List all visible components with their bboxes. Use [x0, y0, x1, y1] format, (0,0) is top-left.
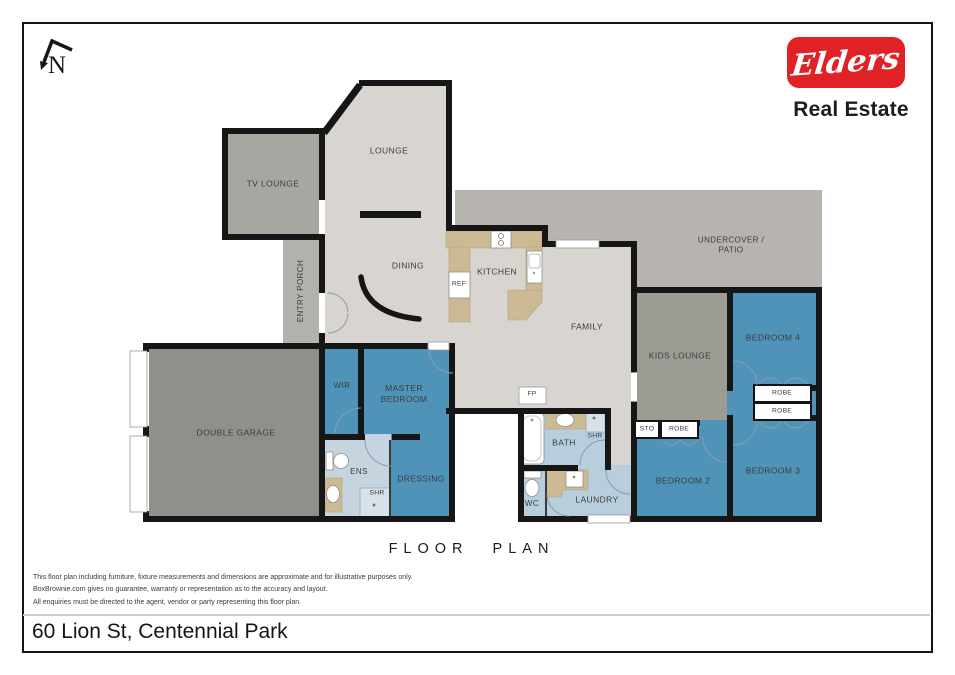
room-label-dining: DINING — [392, 260, 424, 271]
garage-door-1 — [130, 351, 147, 427]
floor-wir — [319, 343, 364, 440]
room-label-bedroom-3: BEDROOM 3 — [746, 465, 801, 476]
family-window — [556, 240, 599, 248]
disclaimer-text: This floor plan including furniture, fix… — [33, 572, 413, 609]
room-label-kids-lounge: KIDS LOUNGE — [649, 350, 712, 361]
laundry-window — [588, 515, 630, 523]
label-fp: FP — [527, 391, 536, 400]
shower-tray-bath — [586, 411, 605, 432]
laundry-sink — [566, 471, 583, 487]
label-shr-bath: SHR — [588, 433, 603, 442]
label-sto: STO — [640, 426, 654, 435]
disclaimer-line-1: This floor plan including furniture, fix… — [33, 572, 413, 584]
room-label-tv-lounge: TV LOUNGE — [247, 178, 300, 189]
hall-opening — [631, 373, 637, 401]
room-label-laundry: LAUNDRY — [575, 494, 618, 505]
ens-basin — [327, 486, 340, 503]
bath-basin — [556, 414, 574, 427]
room-label-wc: WC — [525, 499, 539, 509]
room-label-wir: WIR — [334, 381, 351, 391]
room-label-entry-porch: ENTRY PORCH — [296, 260, 306, 322]
room-label-lounge: LOUNGE — [370, 145, 408, 156]
room-label-double-garage: DOUBLE GARAGE — [197, 427, 276, 438]
wc-toilet-tank — [524, 471, 541, 478]
floor-plan-title: FLOOR PLAN — [0, 541, 943, 557]
floor-plan-page: N Elders Real Estate — [0, 0, 955, 675]
label-ref: REF — [452, 281, 466, 290]
property-address: 60 Lion St, Centennial Park — [32, 620, 288, 644]
room-label-bath: BATH — [552, 437, 576, 448]
label-robe-top: ROBE — [772, 390, 792, 399]
room-label-bedroom-2: BEDROOM 2 — [656, 475, 711, 486]
room-label-master-bedroom: MASTER BEDROOM — [381, 383, 428, 405]
room-label-family: FAMILY — [571, 321, 603, 332]
room-label-dressing: DRESSING — [397, 473, 445, 484]
room-label-kitchen: KITCHEN — [477, 266, 517, 277]
ens-toilet-tank — [326, 452, 333, 470]
label-robe-bottom: ROBE — [772, 408, 792, 417]
disclaimer-line-3: All enquiries must be directed to the ag… — [33, 597, 413, 609]
disclaimer-line-2: BoxBrownie.com gives no guarantee, warra… — [33, 584, 413, 596]
room-label-ens: ENS — [350, 467, 368, 477]
garage-door-2 — [130, 436, 147, 512]
room-floors — [143, 80, 822, 522]
label-robe-bed2: ROBE — [669, 426, 689, 435]
ens-toilet — [334, 454, 349, 469]
footer-divider — [23, 614, 930, 616]
lounge-media-wall — [360, 211, 421, 218]
master-window — [428, 342, 449, 350]
room-label-bedroom-4: BEDROOM 4 — [746, 332, 801, 343]
room-label-patio: UNDERCOVER / PATIO — [698, 236, 764, 257]
label-shr-ens: SHR — [370, 490, 385, 499]
wc-toilet — [525, 480, 539, 497]
